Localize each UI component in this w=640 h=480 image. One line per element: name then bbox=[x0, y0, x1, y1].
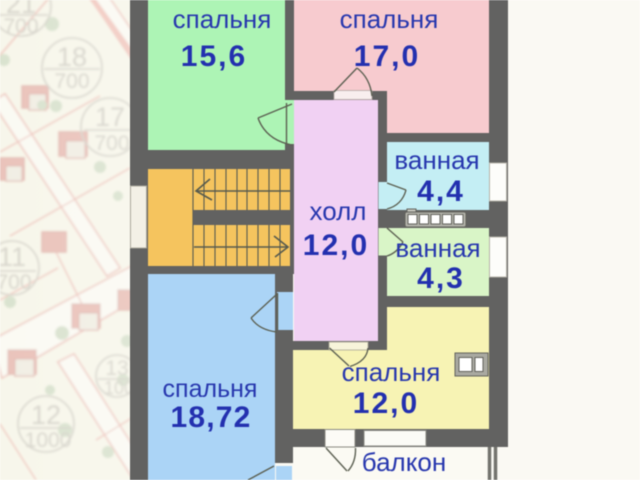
svg-text:12,0: 12,0 bbox=[303, 229, 369, 262]
svg-text:спальня: спальня bbox=[173, 4, 272, 34]
svg-text:спальня: спальня bbox=[163, 375, 258, 403]
svg-text:15,6: 15,6 bbox=[181, 40, 247, 73]
svg-text:ванная: ванная bbox=[395, 233, 480, 263]
svg-text:4,3: 4,3 bbox=[417, 262, 465, 295]
svg-text:спальня: спальня bbox=[342, 357, 441, 387]
svg-text:4,4: 4,4 bbox=[417, 175, 465, 208]
svg-text:17,0: 17,0 bbox=[354, 40, 420, 73]
svg-text:холл: холл bbox=[310, 196, 367, 226]
svg-text:спальня: спальня bbox=[340, 4, 439, 34]
svg-text:18,72: 18,72 bbox=[170, 401, 251, 434]
svg-text:12,0: 12,0 bbox=[353, 387, 419, 420]
svg-text:ванная: ванная bbox=[394, 145, 479, 175]
svg-text:балкон: балкон bbox=[362, 447, 446, 477]
